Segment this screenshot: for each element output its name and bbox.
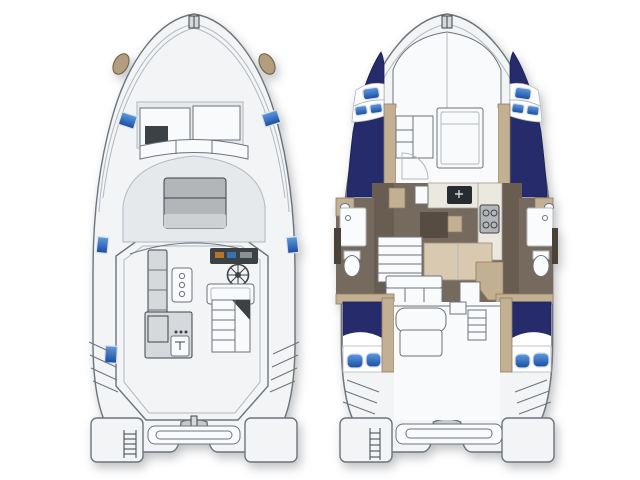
swim-ladder [124, 430, 136, 458]
cabin-window [366, 353, 381, 367]
swim-platform [396, 424, 502, 444]
deck-hatch-mid-starboard [286, 236, 299, 253]
hull-hatch [370, 103, 383, 114]
head-cabinet [334, 228, 341, 264]
head-starboard [519, 198, 558, 302]
helm-console [210, 248, 258, 264]
shower [340, 208, 366, 246]
cabin-window [533, 353, 549, 367]
galley-stove [480, 205, 499, 233]
toilet [533, 251, 549, 277]
galley-sink [447, 186, 472, 204]
anchor-windlass [189, 16, 199, 28]
aft-cabin-wall-port [382, 298, 394, 372]
cockpit-table [172, 268, 192, 302]
shower [527, 208, 553, 246]
aft-cockpit [394, 302, 500, 420]
cabin-window [515, 354, 530, 368]
aft-cabin-berth-port [343, 302, 384, 372]
stern-cleat [191, 416, 197, 426]
wet-bar [145, 312, 192, 358]
deck-hatch-mid-port [96, 237, 109, 254]
island-bed [437, 108, 483, 168]
swim-platform [148, 426, 240, 444]
sunpad [164, 178, 226, 228]
deck-hatch-aft-port [105, 346, 118, 364]
hull-transom-port [91, 418, 143, 462]
cockpit-settee-seat [400, 330, 442, 356]
hull-hatch [526, 105, 539, 116]
forward-cabin [396, 108, 498, 184]
lower-deck-view [334, 14, 558, 462]
aft-cabin-berth-starboard [510, 302, 551, 372]
hull-transom-port [340, 418, 392, 462]
hull-transom-starboard [245, 418, 297, 462]
head-port [334, 198, 374, 302]
hull-hatch [362, 87, 379, 100]
toilet [344, 251, 360, 277]
hull-hatch [355, 105, 368, 116]
saloon-steps [378, 237, 422, 282]
cockpit-settee-back [396, 308, 446, 332]
helm-wheel [228, 265, 249, 286]
catamaran-floorplan-canvas [0, 0, 640, 480]
anchor-windlass [442, 16, 452, 28]
head-cabinet [552, 228, 558, 264]
aft-cabin-wall-starboard [500, 298, 512, 372]
wardrobe [396, 116, 433, 158]
hull-hatch [514, 87, 531, 100]
hull-transom-starboard [502, 418, 554, 462]
companionway-steps [212, 300, 250, 352]
cockpit-steps [468, 310, 486, 340]
hull-hatch [511, 103, 524, 114]
cabin-window [347, 354, 363, 368]
catamaran-floorplan [0, 0, 640, 480]
